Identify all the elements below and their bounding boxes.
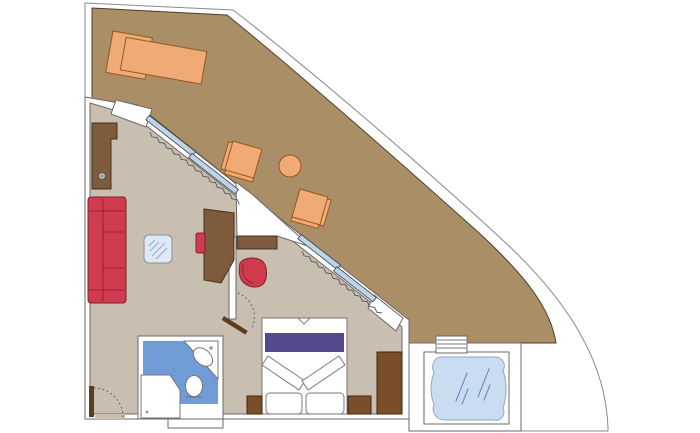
glass-coffee-table: [144, 235, 172, 263]
whirlpool-tub: [431, 357, 506, 420]
desk-stool: [196, 233, 205, 253]
armchair: [239, 258, 266, 287]
wall-console: [237, 236, 277, 249]
entrance-opening: [95, 414, 125, 419]
pillow-left: [266, 393, 302, 414]
ceiling-spot-icon: [99, 173, 105, 179]
bedroom-wardrobe: [377, 352, 402, 414]
floor-plan: [0, 0, 700, 433]
bathroom: [138, 336, 223, 428]
whirlpool-deck: [409, 336, 521, 431]
nightstand-left: [247, 396, 262, 414]
nightstand-right: [348, 396, 371, 414]
balcony-round-table: [279, 155, 301, 177]
bed-runner: [265, 333, 344, 352]
entrance-door: [89, 386, 94, 417]
pillow-right: [306, 393, 344, 414]
shower: [141, 375, 180, 418]
floor-plan-canvas: [0, 0, 700, 433]
sofa: [88, 197, 126, 303]
whirlpool-steps: [436, 336, 467, 353]
double-bed: [262, 318, 347, 414]
